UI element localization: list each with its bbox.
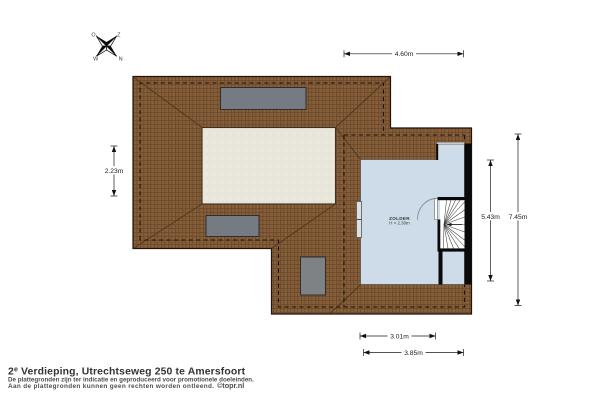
svg-text:3.01m: 3.01m <box>390 334 409 341</box>
svg-text:5.43m: 5.43m <box>481 214 500 221</box>
svg-text:7.45m: 7.45m <box>509 214 528 221</box>
svg-text:Aan de plattegronden kunnen ge: Aan de plattegronden kunnen geen rechten… <box>8 383 214 390</box>
svg-text:4.60m: 4.60m <box>395 51 414 58</box>
svg-text:N: N <box>119 57 123 63</box>
svg-text:O: O <box>91 33 95 39</box>
svg-text:2.23m: 2.23m <box>105 168 124 175</box>
svg-text:©topr.nl: ©topr.nl <box>217 381 244 390</box>
svg-text:H > 2.30m: H > 2.30m <box>389 221 410 226</box>
svg-text:3.85m: 3.85m <box>404 350 423 357</box>
